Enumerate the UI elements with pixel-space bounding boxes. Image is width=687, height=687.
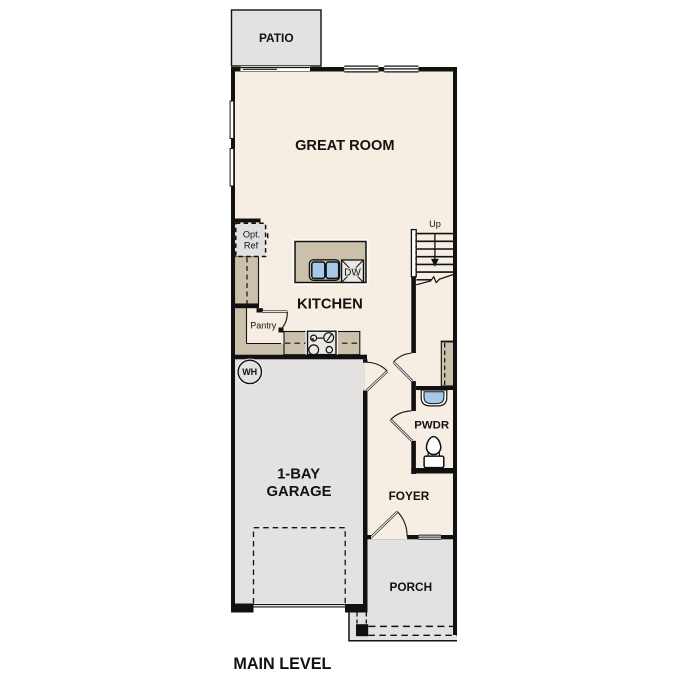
svg-text:Pantry: Pantry: [250, 320, 277, 330]
svg-text:MAIN LEVEL: MAIN LEVEL: [233, 655, 331, 673]
svg-text:1-BAY: 1-BAY: [277, 466, 320, 482]
svg-text:Opt.: Opt.: [243, 230, 260, 240]
svg-text:WH: WH: [242, 367, 257, 377]
svg-text:KITCHEN: KITCHEN: [297, 297, 363, 313]
svg-text:DW: DW: [344, 267, 361, 278]
svg-text:FOYER: FOYER: [389, 489, 430, 503]
svg-text:GREAT ROOM: GREAT ROOM: [295, 138, 394, 154]
svg-text:PWDR: PWDR: [414, 419, 449, 431]
svg-text:PATIO: PATIO: [259, 31, 294, 45]
svg-text:Up: Up: [429, 219, 441, 229]
svg-text:Ref: Ref: [244, 240, 259, 250]
svg-text:GARAGE: GARAGE: [267, 484, 332, 500]
svg-text:PORCH: PORCH: [389, 580, 432, 594]
